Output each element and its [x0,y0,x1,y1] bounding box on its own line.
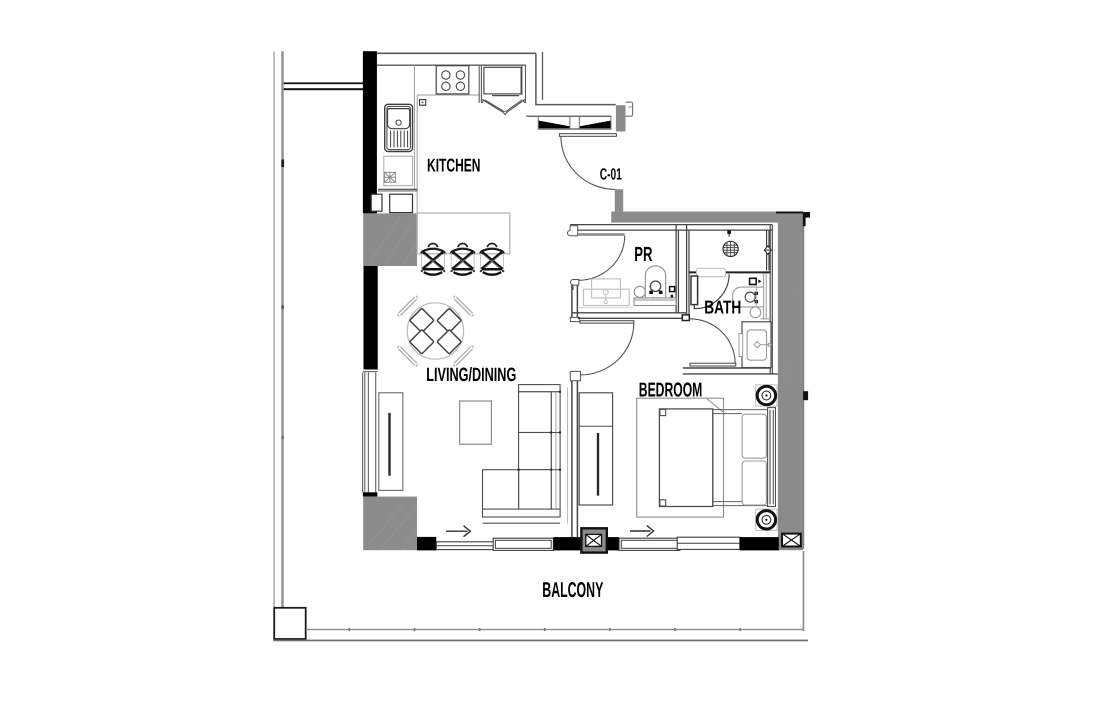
svg-text:PR: PR [634,243,652,266]
svg-text:LIVING/DINING: LIVING/DINING [426,365,516,386]
svg-text:C-01: C-01 [600,166,622,184]
svg-text:BEDROOM: BEDROOM [639,380,703,402]
svg-text:KITCHEN: KITCHEN [427,155,481,176]
svg-text:BALCONY: BALCONY [542,578,603,602]
svg-text:BATH: BATH [704,296,741,317]
